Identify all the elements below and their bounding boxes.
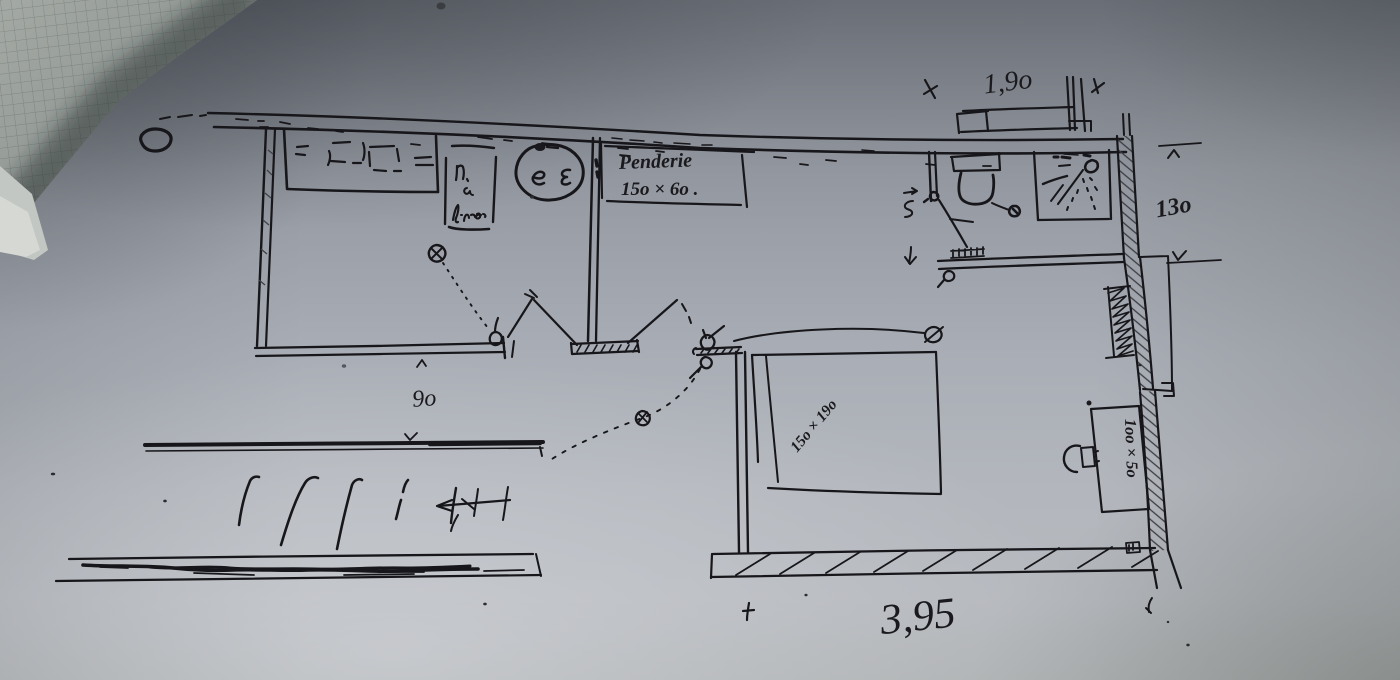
svg-text:3,95: 3,95 [877,589,958,644]
svg-text:13o: 13o [1153,192,1193,224]
svg-text:1oo × 5o: 1oo × 5o [1121,418,1142,478]
svg-text:Penderie: Penderie [617,149,692,174]
svg-text:1,9o: 1,9o [982,64,1034,101]
svg-text:15o × 19o: 15o × 19o [787,396,841,455]
svg-text:15o × 6o .: 15o × 6o . [621,179,698,200]
svg-text:9o: 9o [411,385,437,413]
